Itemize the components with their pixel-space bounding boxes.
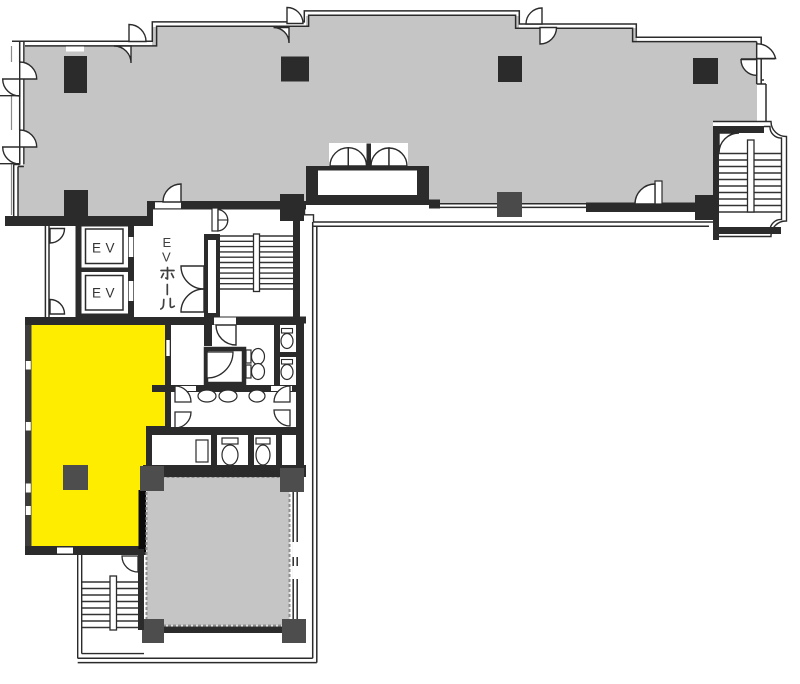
svg-text:EV: EV [92, 240, 119, 255]
svg-text:EV: EV [92, 286, 119, 301]
svg-text:E: E [163, 235, 172, 250]
svg-text:V: V [162, 250, 171, 265]
